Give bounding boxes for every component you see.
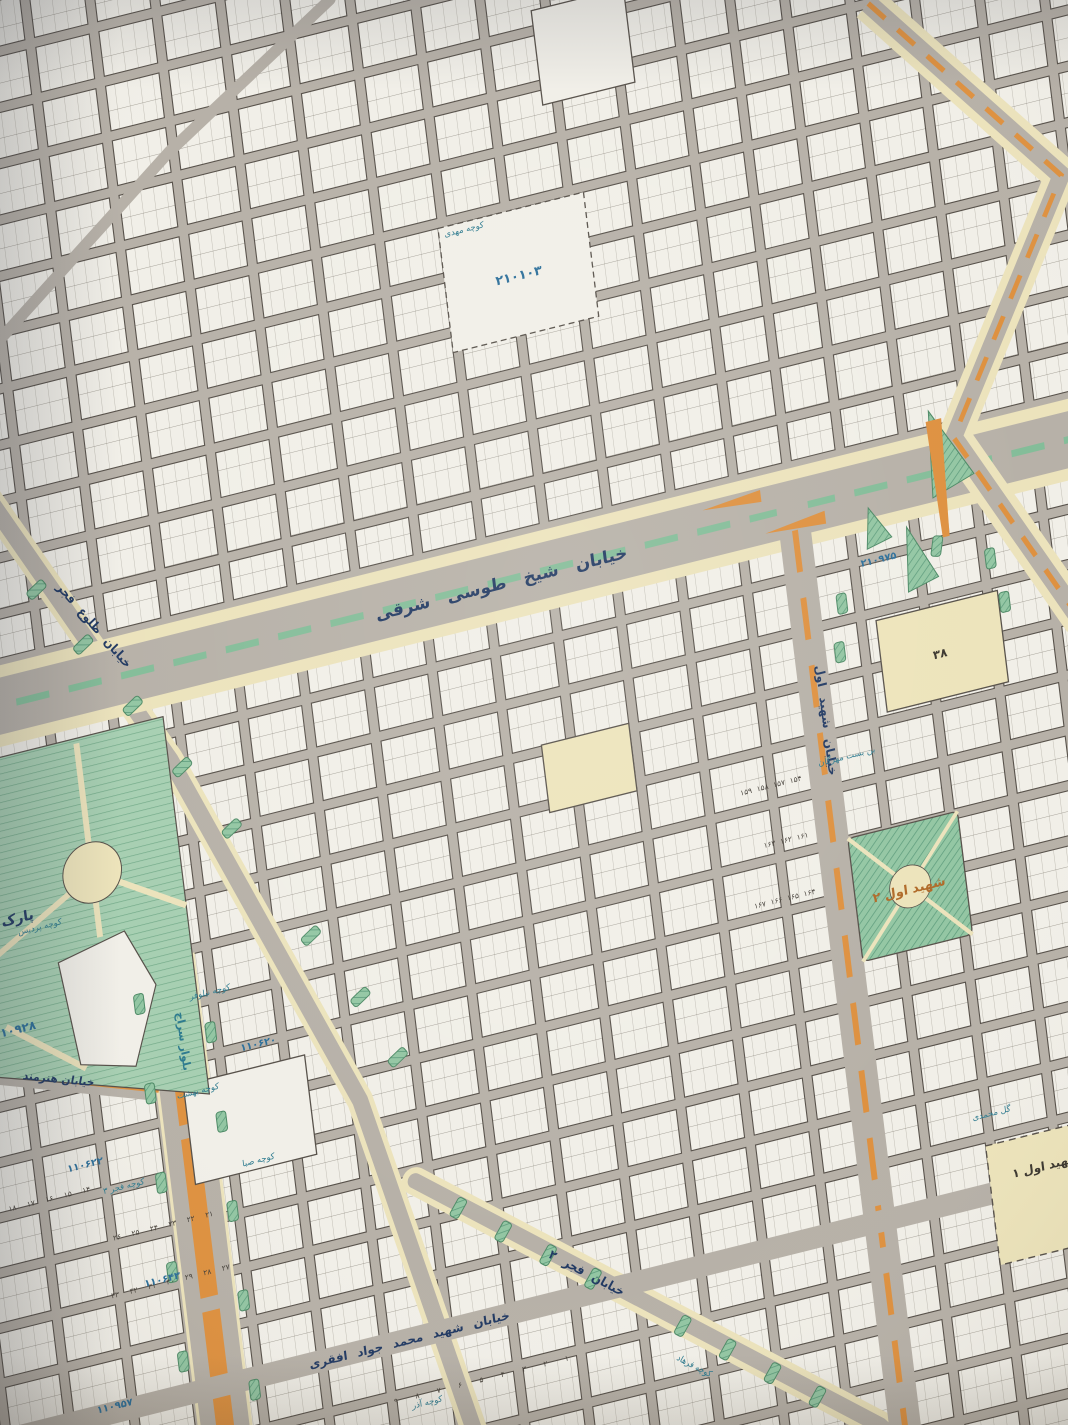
city-parcel-map: ۱۵۴۱۵۷۱۵۸۱۵۹۱۶۱۱۶۲۱۶۳۱۶۴۱۶۵۱۶۶۱۶۷۱۴۱۵۱۶۱…	[0, 0, 1068, 1425]
photo-lighting-overlay	[0, 0, 1068, 1425]
cadastral-map-photo: ۱۵۴۱۵۷۱۵۸۱۵۹۱۶۱۱۶۲۱۶۳۱۶۴۱۶۵۱۶۶۱۶۷۱۴۱۵۱۶۱…	[0, 0, 1068, 1425]
